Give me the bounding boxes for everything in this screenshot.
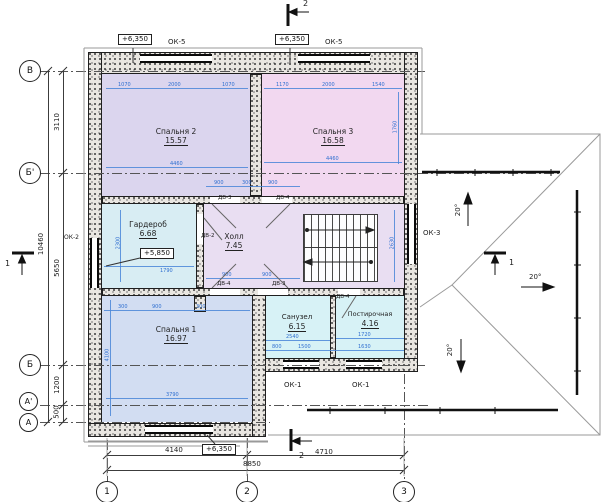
- room-name: Гардероб: [108, 220, 188, 229]
- wall-bedrooms-partition: [250, 74, 262, 196]
- door-label: ДВ-3: [218, 195, 232, 201]
- bdim-label: 1630: [358, 344, 371, 350]
- bdim-label: 4100: [104, 349, 110, 362]
- dim-bottom-1-2: 4140: [165, 446, 183, 454]
- door-opening-bedroom1: [210, 289, 240, 295]
- gridline-col-1: [107, 440, 108, 482]
- bdim-label: 4460: [326, 156, 339, 162]
- dim-line-left-inner: [63, 71, 64, 422]
- bdim-label: 1790: [160, 268, 173, 274]
- grid-bubble-row-v: В: [19, 60, 41, 82]
- grid-bubble-row-a: А: [19, 413, 38, 432]
- room-area: 4.16: [330, 319, 410, 328]
- room-label-bedroom2: Спальня 2 15.57: [136, 127, 216, 145]
- roof-slope-label-down: 20°: [446, 344, 454, 356]
- window-ok1-main: [145, 425, 213, 434]
- window-label-ok2: ОК-2: [64, 234, 79, 242]
- bdim-label: 1170: [276, 82, 289, 88]
- window-label-ok1-a: ОК-1: [284, 381, 301, 389]
- bdim-label: 1760: [392, 121, 398, 134]
- window-label-ok5-left: ОК-5: [168, 38, 185, 46]
- bdim-wardrobe-mid: [104, 266, 194, 267]
- dim-line-left-outer: [48, 71, 49, 422]
- dim-line-bottom-inner: [107, 455, 404, 456]
- room-name: Спальня 2: [136, 127, 216, 136]
- bdim-bedroom3-mid: [264, 162, 402, 163]
- gridline-row-b1: [40, 173, 560, 174]
- dim-line-bottom-outer: [107, 470, 404, 471]
- window-label-ok1-b: ОК-1: [352, 381, 369, 389]
- bdim-label: 1070: [222, 82, 235, 88]
- wall-partition-upper-row: [102, 196, 404, 204]
- roof-slope-label-up: 20°: [454, 204, 462, 216]
- window-label-ok3: ОК-3: [423, 229, 440, 237]
- dim-left-a1-a: 500: [53, 405, 61, 418]
- bdim-bedroom3-top: [264, 88, 402, 89]
- bdim-label: 3790: [166, 392, 179, 398]
- elevation-mark-top-right: +6,350: [275, 34, 309, 45]
- grid-bubble-row-b1: Б': [19, 162, 41, 184]
- roof-slope-arrows: [457, 193, 554, 372]
- bdim-label: 900: [268, 180, 278, 186]
- bdim-label: 2540: [286, 334, 299, 340]
- gridline-row-a: [40, 422, 270, 423]
- bdim-label: 900: [262, 272, 272, 278]
- room-label-bathroom: Санузел 6.15: [257, 313, 337, 331]
- bdim-label: 2630: [389, 237, 395, 250]
- window-ok3: [407, 204, 416, 264]
- gridline-row-v: [40, 71, 425, 72]
- section-label-1-left: 1: [5, 260, 10, 268]
- dim-left-b-a1: 1200: [53, 376, 61, 394]
- bdim-hall-top: [206, 186, 300, 187]
- section-label-2-bottom: 2: [299, 452, 304, 460]
- room-label-laundry: Постирочная 4.16: [330, 310, 410, 328]
- bdim-bedroom2-top: [106, 88, 248, 89]
- elevation-mark-top-left: +6,350: [118, 34, 152, 45]
- bdim-bedroom2-mid: [106, 167, 248, 168]
- door-opening-corridor: [258, 289, 288, 295]
- door-label: ДВ-4: [336, 294, 350, 300]
- door-label: ДВ-2: [201, 233, 215, 239]
- room-name: Санузел: [257, 313, 337, 322]
- room-area: 6.68: [108, 229, 188, 238]
- grid-bubble-col-3: 3: [393, 481, 415, 502]
- gridline-row-a1: [40, 405, 430, 406]
- bdim-label: 300: [196, 304, 206, 310]
- room-area: 6.15: [257, 322, 337, 331]
- bdim-label: 2000: [168, 82, 181, 88]
- dim-left-v-b1: 3110: [53, 113, 61, 131]
- staircase-landing-line: [303, 247, 378, 248]
- section-label-1-roof: 1: [509, 259, 514, 267]
- wall-bedroom1-right: [252, 288, 266, 437]
- grid-bubble-col-1: 1: [96, 481, 118, 502]
- window-ok2: [90, 238, 99, 288]
- room-bedroom1-floor: [102, 296, 252, 422]
- elevation-mark-wardrobe: +5,850: [140, 248, 174, 259]
- bdim-label: 900: [152, 304, 162, 310]
- dim-bottom-total: 8850: [243, 460, 261, 468]
- room-name: Спальня 3: [293, 127, 373, 136]
- gridline-col-3: [404, 374, 405, 482]
- room-name: Спальня 1: [136, 325, 216, 334]
- bdim-label: 4460: [170, 161, 183, 167]
- grid-bubble-row-b: Б: [19, 354, 41, 376]
- bdim-bedroom1-bottom: [106, 398, 248, 399]
- door-label: ДВ-3: [272, 281, 286, 287]
- bdim-hall-bottom: [206, 278, 300, 279]
- window-ok5-right: [298, 54, 370, 63]
- room-area: 16.58: [293, 136, 373, 145]
- room-label-bedroom3: Спальня 3 16.58: [293, 127, 373, 145]
- room-label-wardrobe: Гардероб 6.68: [108, 220, 188, 238]
- bdim-label: 2000: [322, 82, 335, 88]
- floor-plan-drawing: 1070 2000 1070 1170 2000 1540 4460 4460 …: [0, 0, 611, 502]
- grid-bubble-col-2: 2: [236, 481, 258, 502]
- window-ok5-left: [140, 54, 212, 63]
- dim-left-b1-b: 5650: [53, 259, 61, 277]
- gridline-row-b: [40, 365, 425, 366]
- bdim-label: 1720: [358, 332, 371, 338]
- bdim-label: 300: [118, 304, 128, 310]
- roof-slope-label-right: 20°: [529, 273, 541, 281]
- elevation-mark-bottom: +6,350: [202, 444, 236, 455]
- room-label-bedroom1: Спальня 1 16.97: [136, 325, 216, 343]
- dim-bottom-2-3: 4710: [315, 448, 333, 456]
- bdim-laundry: [336, 338, 404, 339]
- bdim-wing-bottom: [266, 350, 404, 351]
- room-area: 7.45: [194, 241, 274, 250]
- room-area: 15.57: [136, 136, 216, 145]
- bdim-bedroom1-top: [104, 310, 250, 311]
- bdim-bathroom: [266, 340, 330, 341]
- section-label-2-top: 2: [303, 0, 308, 8]
- bdim-label: 800: [272, 344, 282, 350]
- bdim-label: 2300: [115, 237, 121, 250]
- door-label: ДВ-4: [276, 195, 290, 201]
- bdim-label: 900: [214, 180, 224, 186]
- bdim-label: 300: [242, 180, 252, 186]
- room-area: 16.97: [136, 334, 216, 343]
- door-label: ДВ-4: [217, 281, 231, 287]
- room-name: Постирочная: [330, 310, 410, 319]
- window-label-ok5-right: ОК-5: [325, 38, 342, 46]
- bdim-label: 1540: [372, 82, 385, 88]
- dim-left-total: 10460: [37, 233, 45, 255]
- staircase: [303, 214, 378, 282]
- bdim-label: 1070: [118, 82, 131, 88]
- grid-bubble-row-a1: А': [19, 392, 38, 411]
- bdim-label: 1500: [298, 344, 311, 350]
- bdim-label: 900: [222, 272, 232, 278]
